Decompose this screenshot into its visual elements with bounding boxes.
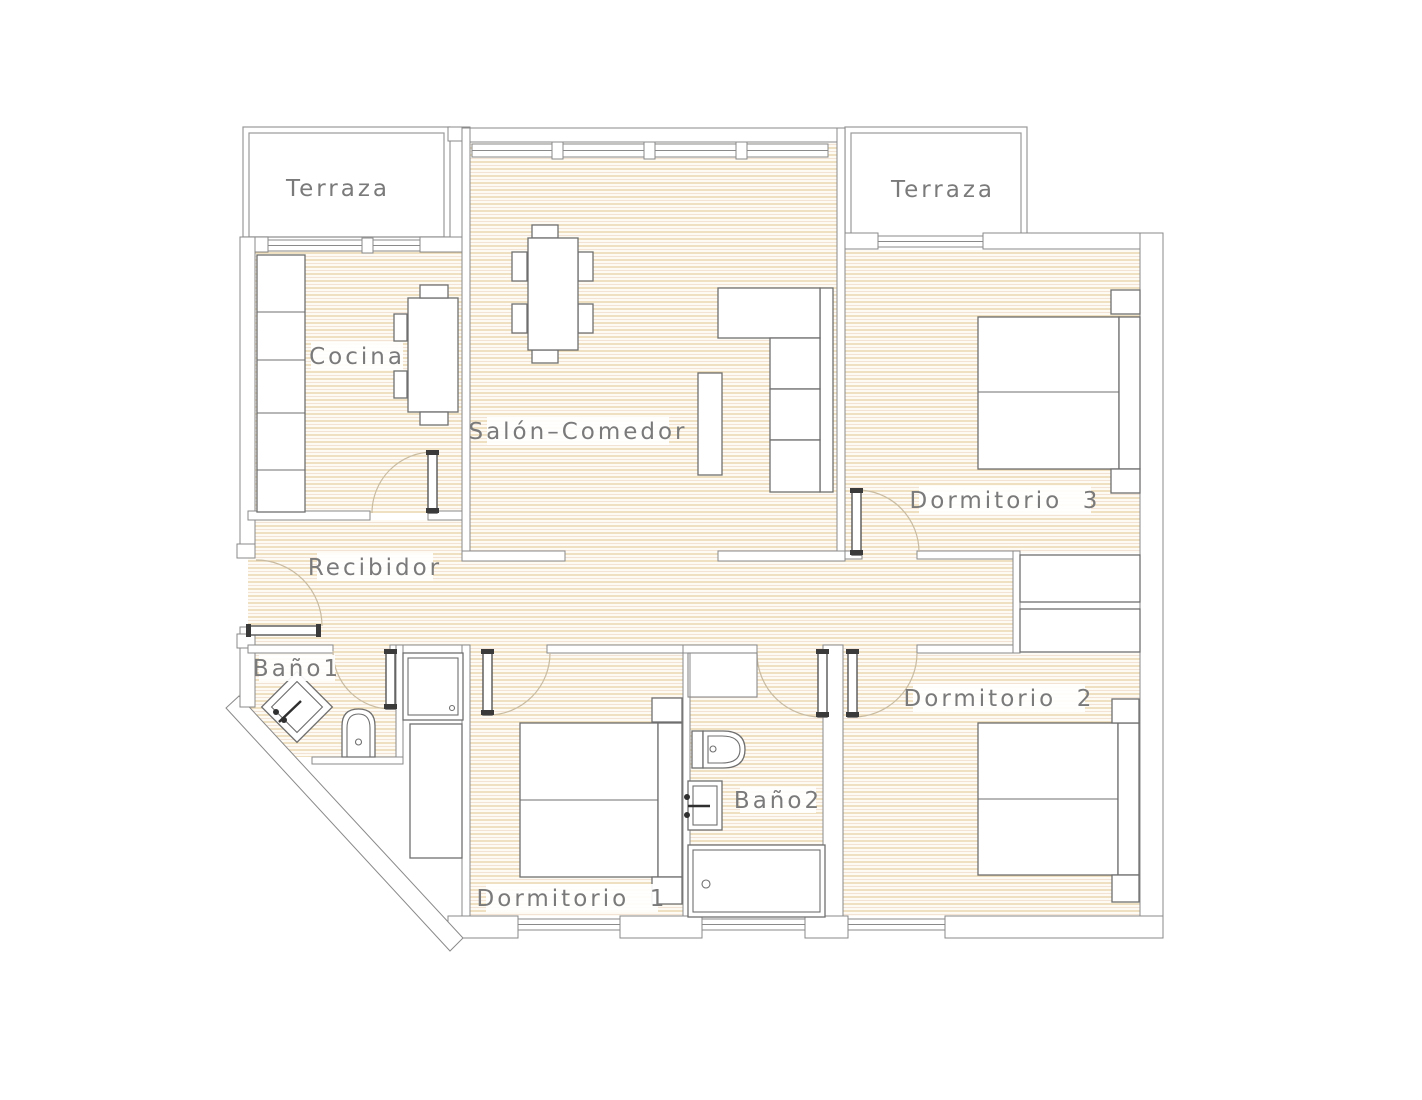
window-mullion — [736, 142, 747, 159]
tv-unit-icon — [698, 373, 722, 475]
door-leaf-icon — [818, 651, 827, 717]
closet-icon — [1020, 555, 1140, 602]
dormitorio3-bed — [978, 290, 1140, 493]
floor-plan-svg: Terraza Terraza Cocina Salón–Comedor Rec… — [0, 0, 1422, 1100]
chair-icon — [394, 314, 407, 341]
nightstand-icon — [1112, 699, 1139, 723]
wall-salon-top — [462, 128, 845, 142]
wall-salon-dorm3 — [837, 128, 845, 551]
double-bed-icon — [978, 317, 1119, 469]
door-leaf-icon — [483, 651, 492, 715]
window-mullion — [552, 142, 563, 159]
chair-icon — [394, 371, 407, 398]
room-label-cocina: Cocina — [309, 344, 405, 370]
shower-icon — [403, 653, 463, 720]
room-label-dormitorio3: Dormitorio 3 — [910, 488, 1101, 514]
headboard — [1118, 723, 1139, 875]
chair-icon — [420, 412, 448, 425]
wall-salon-left — [462, 128, 470, 557]
door-leaf-icon — [248, 626, 320, 635]
kitchen-cabinets-icon — [257, 255, 305, 512]
nightstand-icon — [1112, 875, 1139, 902]
window-mullion — [644, 142, 655, 159]
toilet-icon — [342, 709, 375, 757]
headboard — [658, 723, 682, 877]
chair-icon — [578, 252, 593, 281]
room-label-terraza-left: Terraza — [285, 176, 390, 202]
wall-right-exterior — [1140, 233, 1163, 938]
room-label-bano1: Baño1 — [253, 656, 341, 682]
door-leaf-icon — [852, 490, 861, 555]
headboard — [1119, 317, 1140, 469]
chair-icon — [512, 304, 527, 333]
nightstand-icon — [652, 698, 682, 722]
chair-icon — [532, 350, 558, 363]
room-label-bano2: Baño2 — [734, 788, 822, 814]
closet-icon — [1020, 609, 1140, 652]
chair-icon — [512, 252, 527, 281]
bathtub-icon — [688, 845, 825, 917]
window-mullion — [362, 238, 373, 253]
chair-icon — [420, 285, 448, 298]
washbasin-icon — [684, 781, 722, 830]
room-label-recibidor: Recibidor — [308, 555, 442, 581]
door-leaf-icon — [386, 651, 395, 709]
room-label-salon-comedor: Salón–Comedor — [468, 419, 687, 445]
wall-left-exterior — [240, 237, 255, 557]
chair-icon — [532, 225, 558, 238]
room-label-dormitorio1: Dormitorio 1 — [477, 886, 668, 912]
room-label-dormitorio2: Dormitorio 2 — [904, 686, 1095, 712]
wall-salon-bottom-right — [718, 551, 845, 561]
door-leaf-icon — [428, 452, 437, 513]
wardrobe-icon — [410, 724, 462, 858]
bano2-closet-zone — [688, 653, 757, 697]
chair-icon — [578, 304, 593, 333]
floor-plan-canvas: Terraza Terraza Cocina Salón–Comedor Rec… — [0, 0, 1422, 1100]
toilet-icon — [692, 731, 745, 768]
dormitorio2-bed — [978, 699, 1139, 902]
room-label-terraza-right: Terraza — [890, 177, 995, 203]
nightstand-icon — [1111, 290, 1140, 314]
nightstand-icon — [1111, 469, 1140, 493]
dormitorio1-bed — [520, 698, 682, 904]
wall-salon-bottom-left — [462, 551, 565, 561]
door-leaf-icon — [848, 651, 857, 717]
